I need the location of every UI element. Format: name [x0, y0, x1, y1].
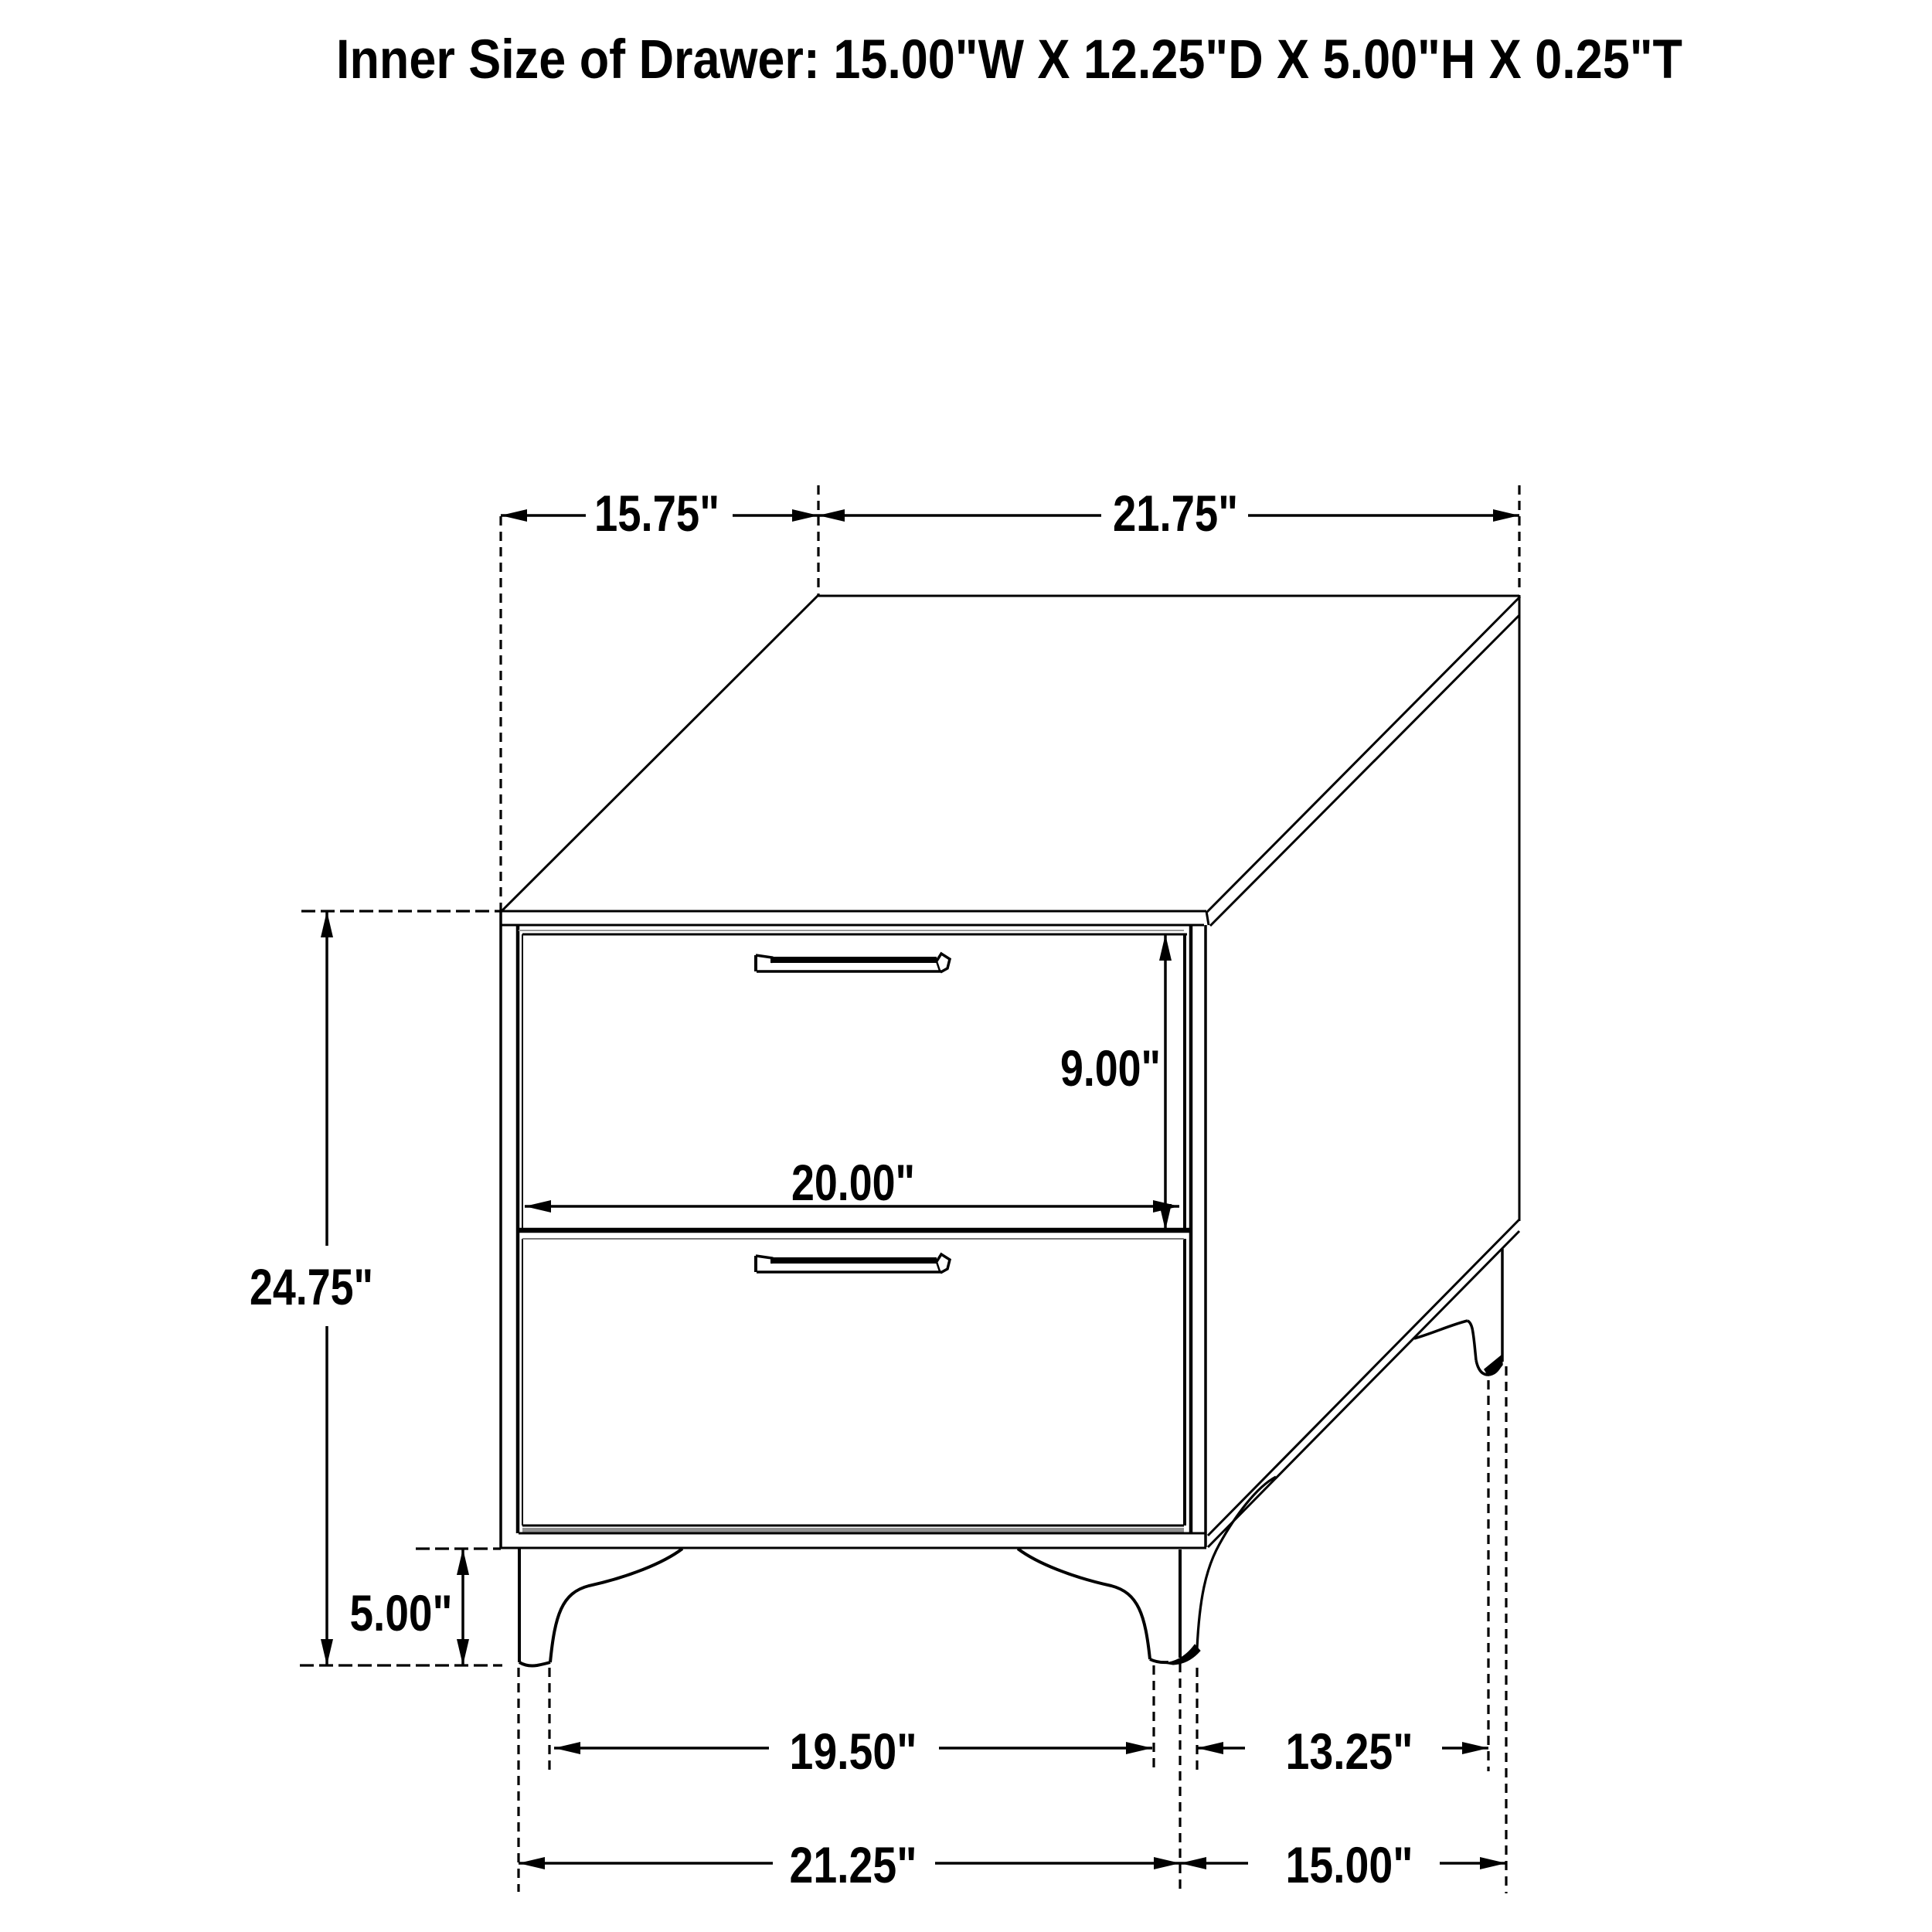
- svg-text:21.75": 21.75": [1113, 485, 1238, 542]
- svg-text:13.25": 13.25": [1286, 1723, 1413, 1780]
- svg-text:Inner Size of Drawer: 15.00"W: Inner Size of Drawer: 15.00"W X 12.25"D …: [336, 29, 1682, 90]
- svg-text:24.75": 24.75": [250, 1258, 373, 1315]
- svg-text:15.00": 15.00": [1286, 1836, 1413, 1893]
- svg-text:5.00": 5.00": [350, 1584, 453, 1641]
- svg-text:19.50": 19.50": [790, 1723, 917, 1780]
- svg-text:9.00": 9.00": [1060, 1039, 1161, 1097]
- svg-text:21.25": 21.25": [790, 1836, 917, 1893]
- svg-text:20.00": 20.00": [791, 1154, 915, 1211]
- svg-text:15.75": 15.75": [594, 485, 719, 542]
